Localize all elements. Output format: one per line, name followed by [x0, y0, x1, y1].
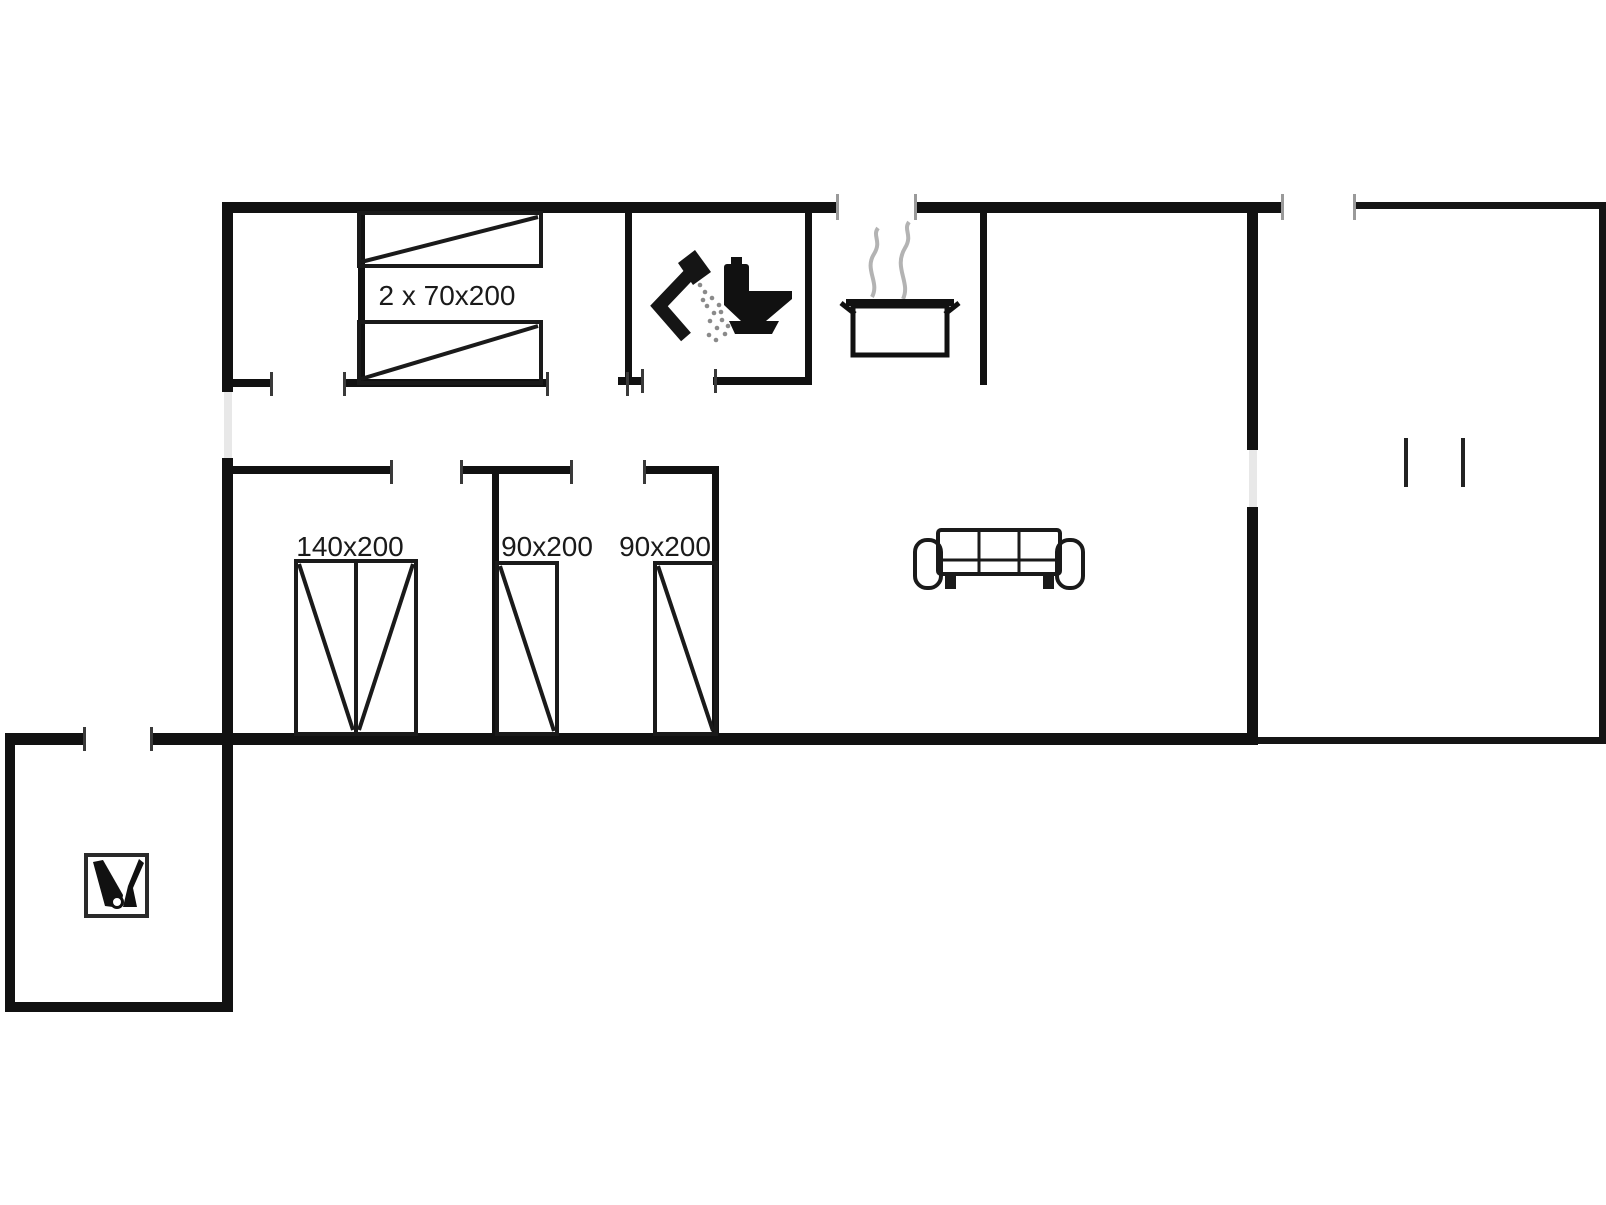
door-jamb: [643, 460, 646, 484]
wall-bathroom-south-stub: [618, 377, 643, 385]
bunk-bed-top: [359, 213, 541, 266]
double-bed-label: 140x200: [296, 531, 403, 562]
shower-icon: [659, 250, 730, 342]
wall-corridor-3: [645, 466, 719, 474]
door-jamb: [83, 727, 86, 751]
wall-east-upper: [1247, 202, 1258, 450]
floor-plan-canvas: 2 x 70x200 140x200 90x200 90x200: [0, 0, 1606, 1205]
wall-corridor-1: [228, 466, 392, 474]
shed-wall-west: [5, 733, 15, 1012]
terrace-walls: [1258, 202, 1606, 744]
door-jamb: [714, 369, 717, 393]
door-jamb: [626, 372, 629, 396]
cooking-pot-icon: [841, 222, 959, 355]
wall-kitchen-divider: [980, 209, 987, 385]
shed-wall-top-left: [5, 733, 85, 745]
door-jamb: [570, 460, 573, 484]
terrace-post-mark: [1404, 438, 1408, 487]
door-jamb: [343, 372, 346, 396]
terrace-wall-top: [1355, 202, 1606, 209]
window-jamb: [1281, 194, 1284, 220]
terrace-post-mark: [1461, 438, 1465, 487]
door-jamb: [270, 372, 273, 396]
window-jamb: [836, 194, 839, 220]
steam-icon: [871, 222, 909, 299]
east-opening-ghost: [1249, 450, 1257, 507]
sofa-icon: [915, 530, 1083, 589]
door-jamb: [150, 727, 153, 751]
wall-top-right: [916, 202, 1282, 213]
interior-walls: [222, 209, 987, 736]
bunk-bed-bottom: [359, 322, 541, 383]
cleaning-tools-icon: [86, 855, 147, 916]
wall-corridor-2: [462, 466, 572, 474]
terrace-wall-right: [1599, 202, 1606, 744]
single-bed-2: [655, 563, 716, 734]
shed-wall-bottom: [5, 1002, 233, 1012]
wall-east-lower: [1247, 507, 1258, 744]
single-bed-1: [497, 563, 557, 734]
window-jamb: [914, 194, 917, 220]
terrace-post-marks: [1404, 438, 1465, 487]
door-jamb: [390, 460, 393, 484]
toilet-icon: [724, 257, 792, 334]
single-bed-1-label: 90x200: [501, 531, 593, 562]
bunk-beds-label: 2 x 70x200: [379, 280, 516, 311]
window-jamb: [1353, 194, 1356, 220]
single-bed-2-label: 90x200: [619, 531, 711, 562]
door-jamb: [641, 369, 644, 393]
wall-bathroom-east: [805, 209, 812, 385]
door-jamb: [546, 372, 549, 396]
window-ghosts: [224, 392, 1257, 507]
wall-bunkroom-south-stub: [222, 379, 272, 387]
terrace-wall-bottom: [1258, 737, 1606, 744]
wall-bathroom-south-east: [713, 377, 812, 385]
double-bed: [296, 561, 416, 734]
wall-west-upper: [222, 202, 233, 392]
door-jamb: [460, 460, 463, 484]
wall-bathroom-west: [625, 209, 632, 385]
west-opening-ghost: [224, 392, 232, 458]
exterior-walls: [5, 202, 1282, 1012]
